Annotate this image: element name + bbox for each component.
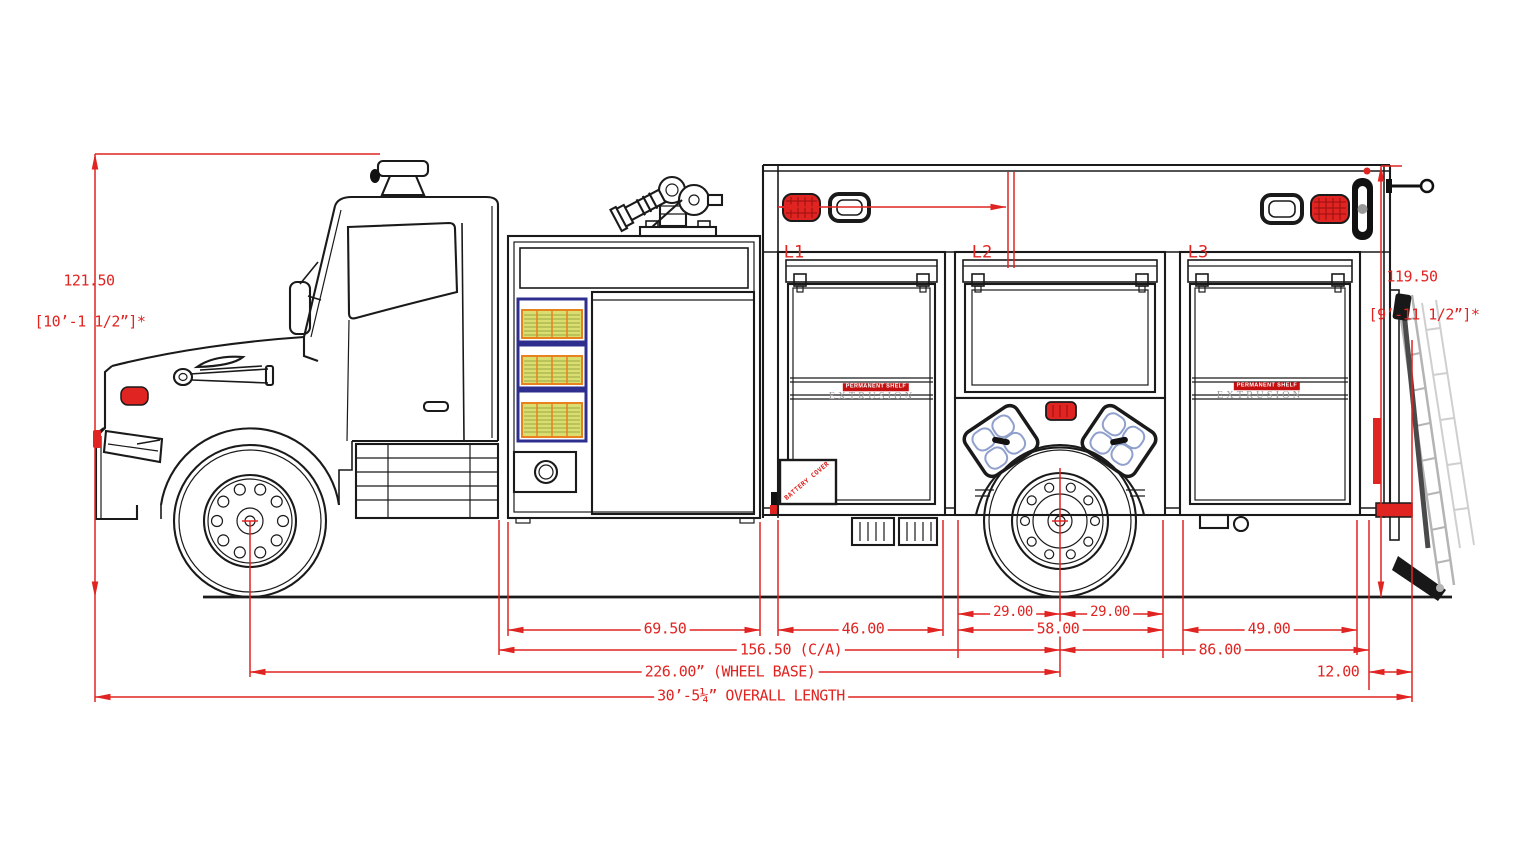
compartment-label-l3: L3 xyxy=(1188,245,1208,262)
permanent-shelf-label-l1: PERMANENT SHELF xyxy=(843,383,909,391)
compartment-label-l2: L2 xyxy=(972,245,992,262)
dim-height-right-feet: [9’-11 1/2”]* xyxy=(1369,308,1480,323)
dim-well-rear-half: 29.00 xyxy=(1087,605,1133,619)
dim-cab-to-axle: 156.50 (C/A) xyxy=(737,643,845,658)
dim-l3-width: 49.00 xyxy=(1245,622,1294,637)
rear-folding-ladder xyxy=(1373,179,1474,601)
dim-wheel-well-width: 58.00 xyxy=(1034,622,1083,637)
dim-pump-module-width: 69.50 xyxy=(641,622,690,637)
compartment-l2 xyxy=(955,252,1165,398)
dim-wheel-base: 226.00” (WHEEL BASE) xyxy=(642,665,819,680)
crosslay-hose-trays xyxy=(518,299,586,441)
truck-line-art xyxy=(0,0,1536,864)
extrusion-label-l1: EXTRUSION xyxy=(829,392,916,403)
underbody-equipment xyxy=(852,515,1248,545)
extrusion-label-l3: EXTRUSION xyxy=(1217,391,1304,402)
dim-overall-length: 30’-5¼” OVERALL LENGTH xyxy=(654,689,848,704)
dim-height-right-inches: 119.50 xyxy=(1386,270,1437,285)
dim-l1-width: 46.00 xyxy=(839,622,888,637)
dim-height-left-inches: 121.50 xyxy=(63,274,114,289)
dim-well-front-half: 29.00 xyxy=(990,605,1036,619)
fire-apparatus-elevation-drawing: 121.50 [10’-1 1/2”]* 119.50 [9’-11 1/2”]… xyxy=(0,0,1536,864)
deck-gun xyxy=(610,177,722,236)
dim-axle-to-body-rear: 86.00 xyxy=(1196,643,1245,658)
permanent-shelf-label-l3: PERMANENT SHELF xyxy=(1234,382,1300,390)
compartment-label-l1: L1 xyxy=(784,245,804,262)
cab xyxy=(93,161,498,519)
dim-height-left-feet: [10’-1 1/2”]* xyxy=(35,315,146,330)
dim-rear-overhang: 12.00 xyxy=(1314,665,1363,680)
